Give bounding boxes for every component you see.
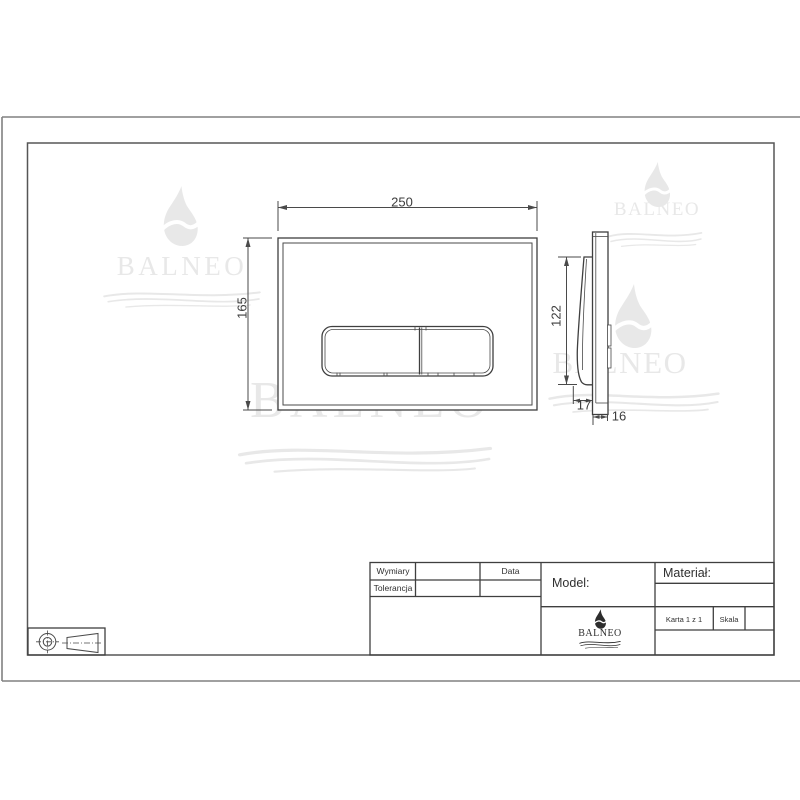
balneo-wordmark: BALNEO xyxy=(614,200,700,219)
material-label: Materiał: xyxy=(663,567,711,580)
balneo-waves-icon xyxy=(607,228,703,250)
balneo-flame-icon xyxy=(593,609,608,629)
first-angle-projection-icon xyxy=(28,628,105,655)
balneo-waves-icon xyxy=(236,440,494,478)
drawing-sheet: { "colors": { "line": "#3f3f3f", "dim": … xyxy=(0,0,800,800)
balneo-flame-icon xyxy=(610,281,657,351)
dimensions-label: Wymiary xyxy=(371,567,415,576)
dim-label-thickness: 16 xyxy=(612,410,626,423)
balneo-wordmark: BALNEO xyxy=(578,629,622,639)
tolerance-label: Tolerancja xyxy=(370,584,416,593)
dim-label-front-width: 250 xyxy=(391,196,413,209)
balneo-wordmark: BALNEO xyxy=(250,375,492,427)
balneo-flame-icon xyxy=(324,242,414,372)
balneo-waves-icon xyxy=(547,387,721,417)
date-label: Data xyxy=(480,567,541,576)
scale-label: Skala xyxy=(713,616,745,624)
balneo-wordmark: BALNEO xyxy=(552,347,687,378)
dim-label-button-depth: 17 xyxy=(577,399,591,412)
balneo-waves-icon xyxy=(579,639,621,650)
balneo-flame-icon xyxy=(159,184,203,248)
dim-label-front-height: 165 xyxy=(236,297,249,319)
sheet-number-label: Karta 1 z 1 xyxy=(655,616,713,624)
dim-label-side-height: 122 xyxy=(550,305,563,327)
balneo-wordmark: BALNEO xyxy=(117,253,248,280)
model-label: Model: xyxy=(552,577,590,590)
